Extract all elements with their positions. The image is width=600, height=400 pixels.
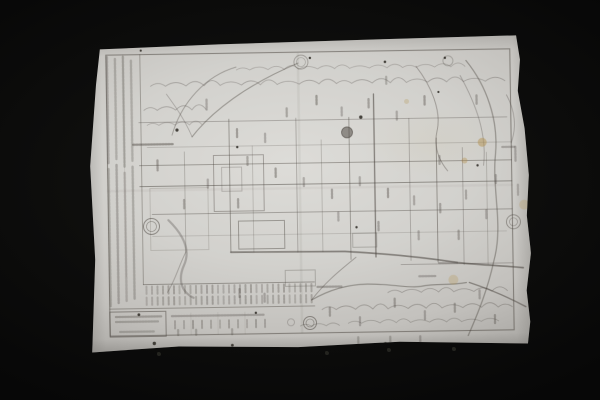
ink-speck <box>359 115 362 118</box>
legend-text-column <box>117 165 119 303</box>
ink-speck <box>384 342 387 345</box>
street-vertical <box>252 146 254 252</box>
map-label-marks <box>133 144 173 145</box>
legend-text-column <box>133 167 135 299</box>
map-label-marks <box>120 331 154 332</box>
photo-black-background <box>0 0 600 400</box>
ink-speck <box>476 164 478 166</box>
ink-speck <box>255 312 257 314</box>
seal-stamp <box>506 215 520 229</box>
ink-speck <box>355 226 357 228</box>
ink-speck <box>231 344 234 347</box>
stain <box>478 138 487 147</box>
legend-rule <box>140 55 144 285</box>
mat-mark <box>325 351 329 355</box>
street-vertical <box>462 148 464 265</box>
ink-speck <box>437 91 439 93</box>
city-block <box>353 233 377 247</box>
ink-speck <box>384 60 387 63</box>
mountain-chain <box>236 63 465 70</box>
seal-stamp-inner-ring <box>146 221 156 231</box>
mountain-chain <box>348 317 499 323</box>
stain <box>519 200 529 210</box>
street-vertical <box>436 138 438 262</box>
seal-stamp <box>143 218 159 234</box>
ink-speck <box>309 57 311 59</box>
route-stroke <box>231 248 523 273</box>
legend-text-column <box>131 61 133 161</box>
legend-text-column <box>107 57 109 163</box>
seal-stamp <box>341 127 352 138</box>
map-print-svg <box>86 35 533 354</box>
street-horizontal <box>110 306 315 309</box>
street-horizontal <box>153 231 507 237</box>
city-block <box>222 167 242 191</box>
seal-stamp <box>303 316 316 329</box>
street-vertical <box>486 152 488 264</box>
mountain-chain <box>322 302 513 310</box>
mat-mark <box>452 347 456 351</box>
ink-speck <box>175 128 178 131</box>
route-stroke <box>464 60 500 335</box>
route-stroke <box>469 282 525 308</box>
mat-mark <box>157 352 161 356</box>
legend-text-column <box>115 59 117 159</box>
street-horizontal <box>147 142 511 148</box>
street-horizontal <box>152 209 512 215</box>
street-vertical <box>296 118 298 252</box>
ink-speck <box>153 342 156 345</box>
stain <box>404 99 409 104</box>
map-frame-border <box>106 49 514 336</box>
legend-text-column <box>123 57 125 167</box>
mat-mark <box>387 348 391 352</box>
route-stroke <box>167 252 187 292</box>
seal-stamp-inner-ring <box>306 319 314 327</box>
seal-stamp <box>294 55 308 69</box>
city-block <box>150 188 209 251</box>
street-vertical <box>321 140 323 252</box>
map-sheet <box>86 35 533 354</box>
route-stroke <box>311 257 357 300</box>
seal-stamp <box>287 319 294 326</box>
ink-speck <box>140 50 142 52</box>
map-label-marks <box>116 316 162 317</box>
street-vertical <box>409 118 411 260</box>
street-horizontal <box>140 160 512 166</box>
seal-stamp-inner-ring <box>509 218 517 226</box>
route-stroke <box>171 67 237 135</box>
route-stroke <box>460 75 484 165</box>
route-stroke <box>311 283 466 300</box>
map-label-marks <box>116 321 158 322</box>
map-label-marks <box>172 315 264 316</box>
